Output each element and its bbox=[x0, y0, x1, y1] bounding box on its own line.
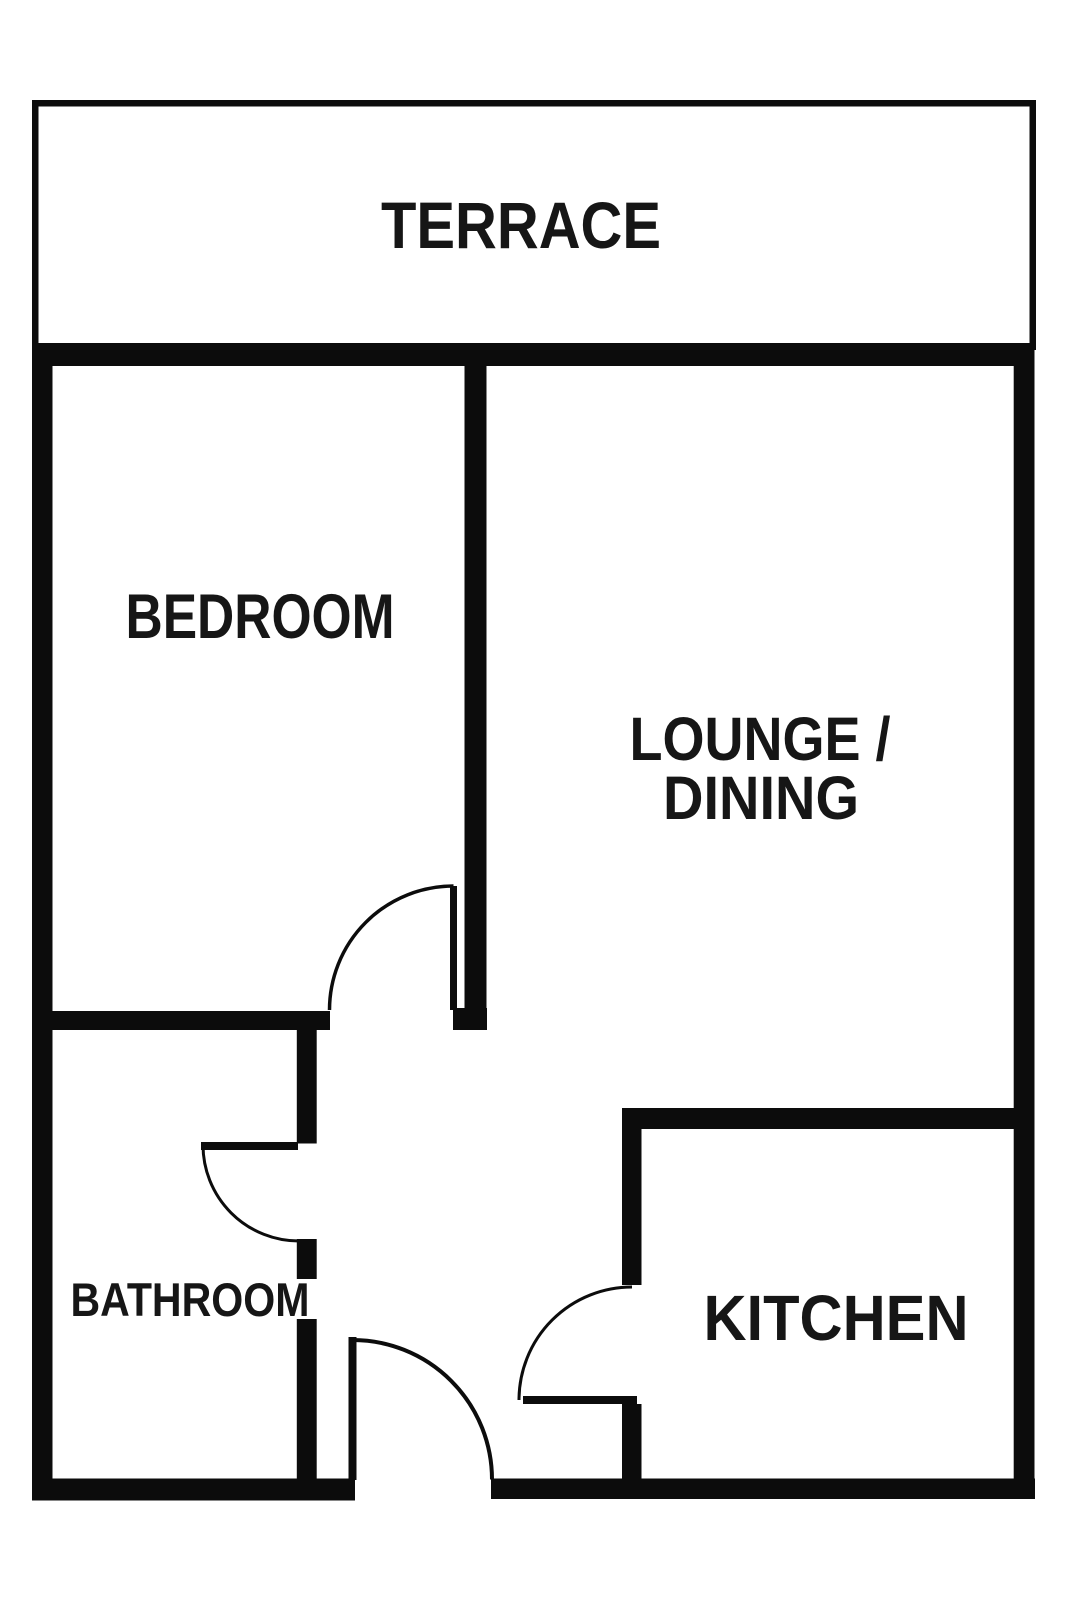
svg-text:BATHROOM: BATHROOM bbox=[71, 1273, 310, 1326]
svg-text:KITCHEN: KITCHEN bbox=[704, 1282, 969, 1354]
svg-text:DINING: DINING bbox=[663, 764, 859, 832]
svg-text:TERRACE: TERRACE bbox=[381, 188, 661, 262]
svg-text:LOUNGE /: LOUNGE / bbox=[630, 705, 891, 773]
svg-text:BEDROOM: BEDROOM bbox=[126, 582, 395, 652]
